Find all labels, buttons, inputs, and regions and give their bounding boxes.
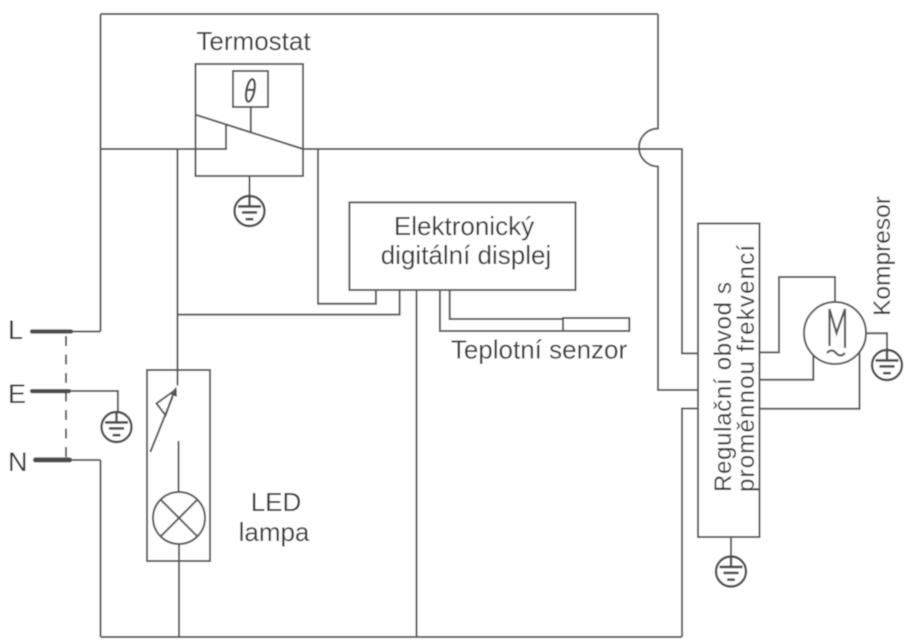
svg-text:lampa: lampa xyxy=(239,517,310,547)
svg-text:proměnnou frekvencí: proměnnou frekvencí xyxy=(733,244,760,492)
svg-text:E: E xyxy=(8,379,26,409)
svg-text:Termostat: Termostat xyxy=(196,26,311,56)
svg-text:Elektronický: Elektronický xyxy=(394,211,534,241)
svg-text:Teplotní senzor: Teplotní senzor xyxy=(451,335,628,365)
svg-text:LED: LED xyxy=(251,487,302,517)
svg-text:N: N xyxy=(8,447,28,477)
svg-text:digitální displej: digitální displej xyxy=(381,240,552,270)
svg-text:L: L xyxy=(8,315,23,345)
svg-text:Kompresor: Kompresor xyxy=(869,196,896,316)
